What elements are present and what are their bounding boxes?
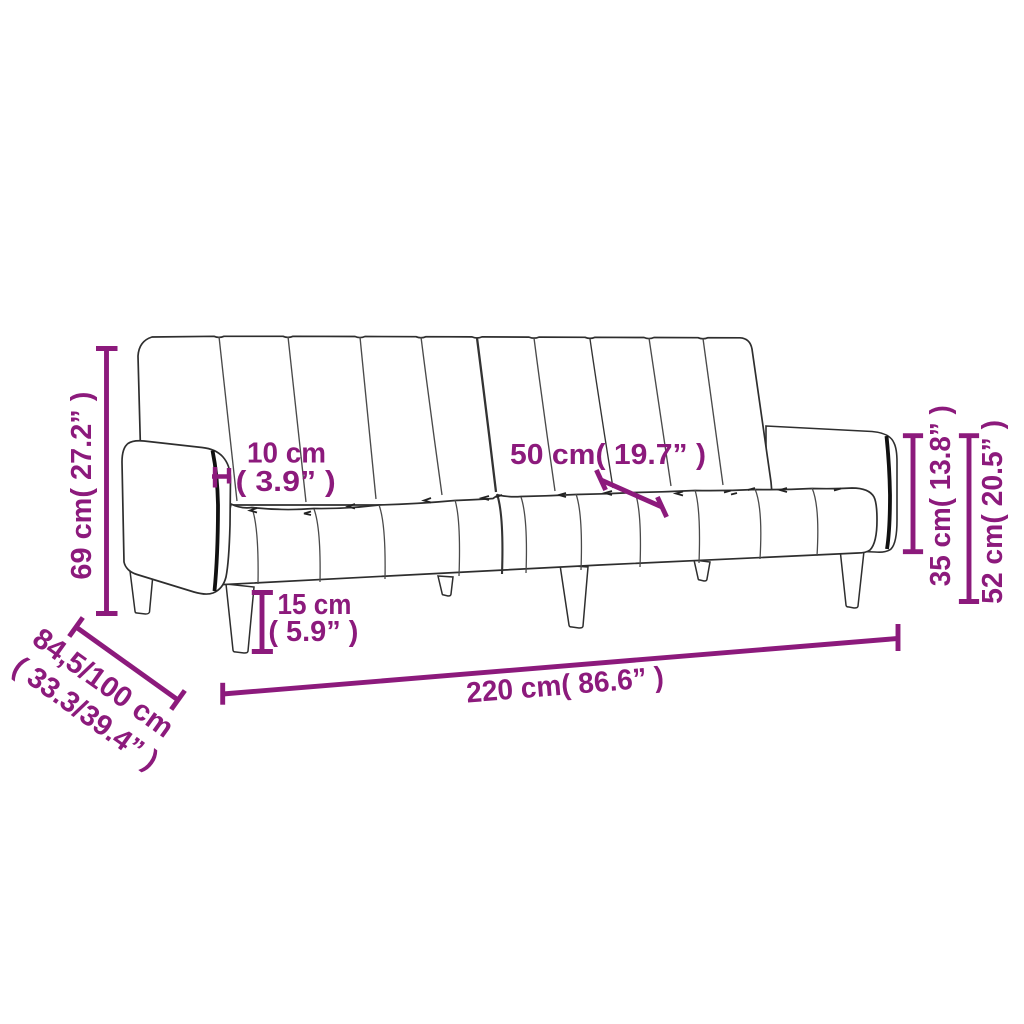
svg-text:( 5.9” ): ( 5.9” ) xyxy=(268,616,358,648)
svg-text:69 cm( 27.2” ): 69 cm( 27.2” ) xyxy=(66,392,98,580)
svg-text:52 cm( 20.5” ): 52 cm( 20.5” ) xyxy=(977,420,1009,604)
svg-text:50 cm( 19.7” ): 50 cm( 19.7” ) xyxy=(510,439,706,471)
svg-text:10 cm: 10 cm xyxy=(247,438,326,470)
svg-text:( 3.9” ): ( 3.9” ) xyxy=(236,466,336,498)
svg-text:35 cm( 13.8” ): 35 cm( 13.8” ) xyxy=(925,405,957,586)
